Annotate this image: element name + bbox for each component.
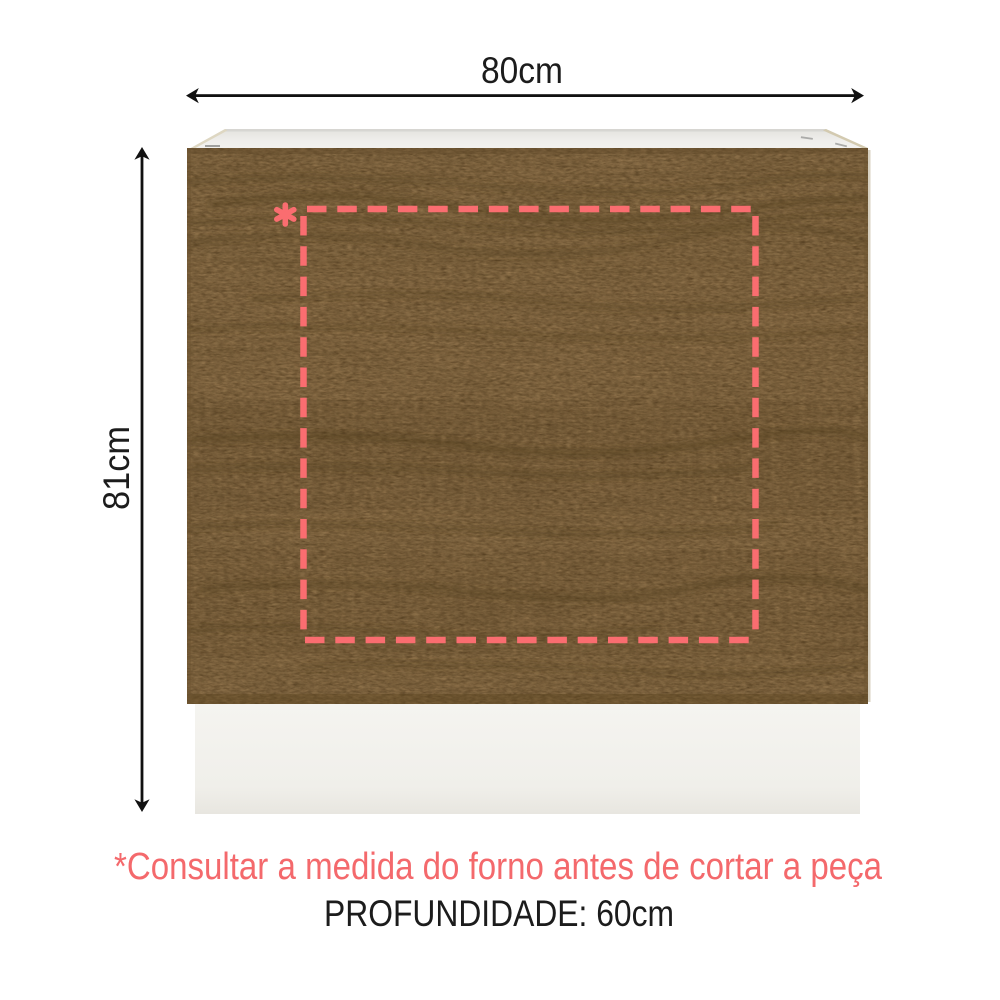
- svg-text:80cm: 80cm: [481, 50, 563, 91]
- svg-text:*Consultar a medida do forno a: *Consultar a medida do forno antes de co…: [114, 846, 883, 888]
- svg-text:PROFUNDIDADE: 60cm: PROFUNDIDADE: 60cm: [324, 893, 674, 934]
- svg-text:81cm: 81cm: [96, 426, 137, 510]
